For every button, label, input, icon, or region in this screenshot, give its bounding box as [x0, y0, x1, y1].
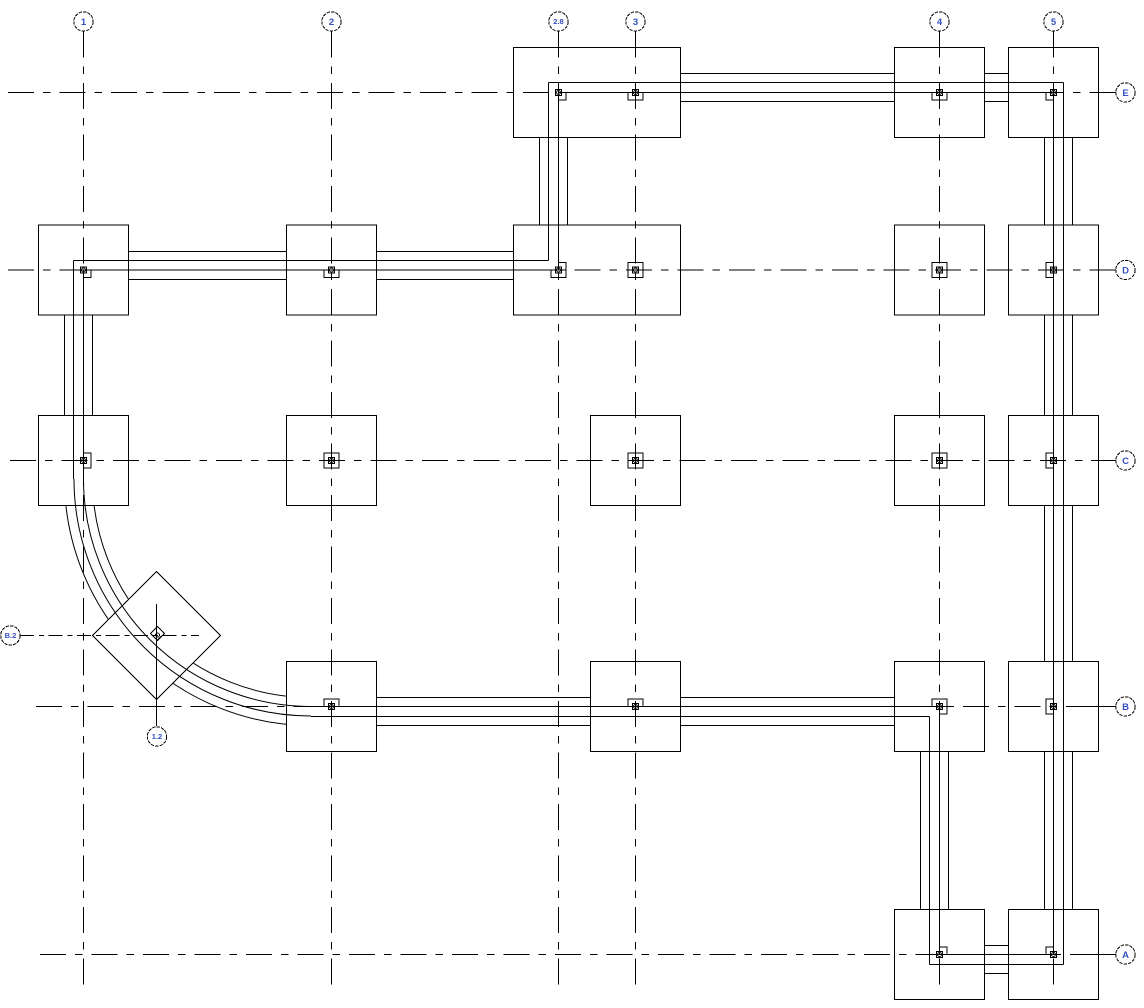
svg-text:C: C [1122, 456, 1129, 467]
svg-text:E: E [1122, 88, 1128, 99]
svg-text:2.8: 2.8 [553, 17, 563, 26]
svg-text:5: 5 [1051, 17, 1057, 28]
svg-text:2: 2 [329, 17, 334, 28]
svg-text:1: 1 [81, 17, 87, 28]
svg-text:B.2: B.2 [5, 631, 17, 640]
svg-text:1.2: 1.2 [152, 732, 162, 741]
svg-text:D: D [1122, 265, 1129, 276]
svg-text:3: 3 [633, 17, 638, 28]
svg-text:4: 4 [937, 17, 943, 28]
svg-text:B: B [1122, 702, 1129, 713]
svg-text:A: A [1122, 950, 1129, 961]
